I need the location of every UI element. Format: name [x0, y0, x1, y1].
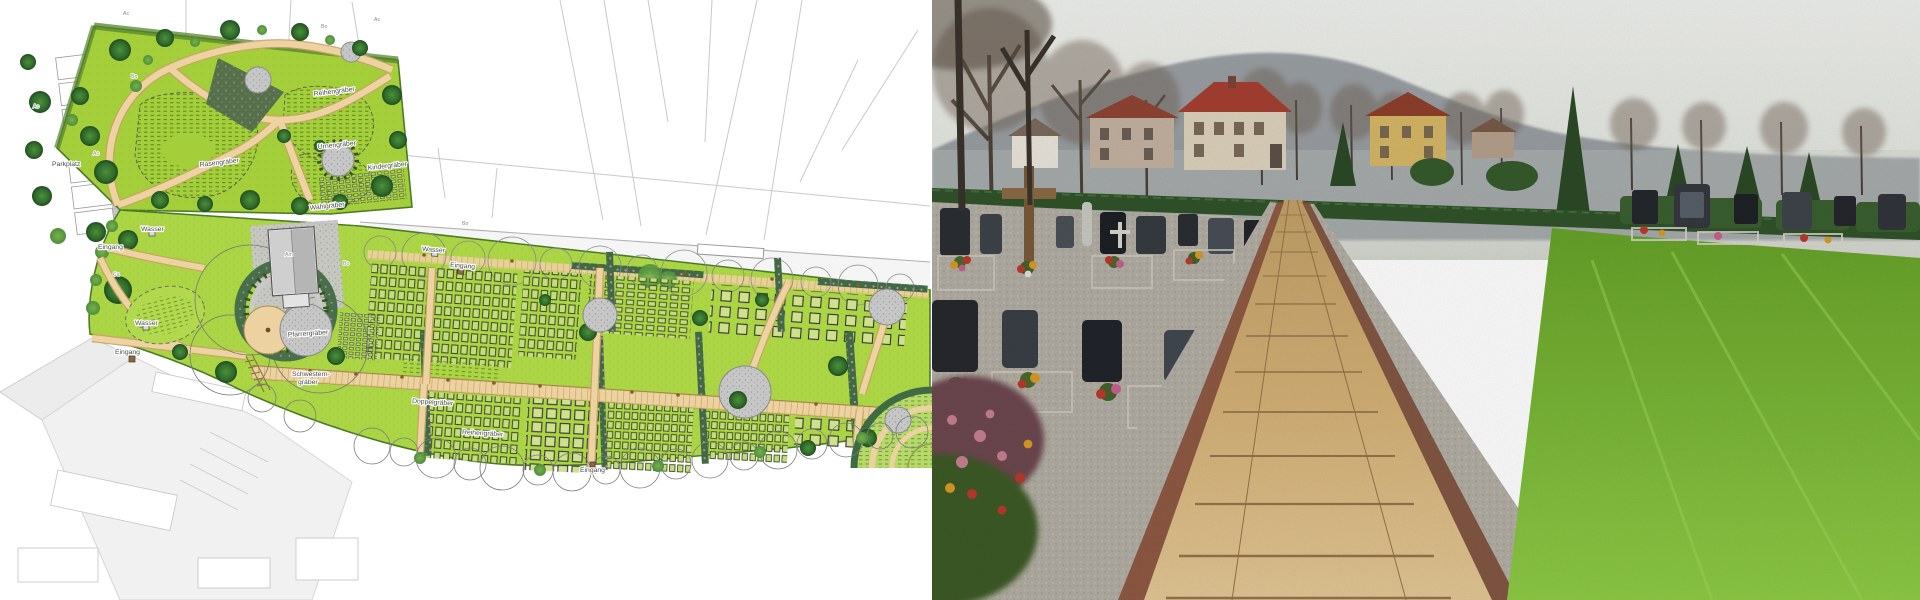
plan-label-schwestern: Schwestern- — [292, 371, 330, 378]
screenshot: Parkplatz Rasengräber Reihengräber Urnen… — [0, 0, 1920, 600]
wooded-grove — [57, 20, 412, 215]
site-plan-drawing: Parkplatz Rasengräber Reihengräber Urnen… — [0, 0, 932, 600]
tree-code: Ac — [374, 17, 380, 23]
plan-label-wasser-2: Wasser — [135, 320, 159, 327]
tree-code: Ca — [113, 272, 120, 278]
plan-label-eingang-4: Eingang — [580, 467, 605, 474]
plan-label-eingang-2: Eingang — [115, 349, 140, 356]
tree-code: Bo — [343, 261, 349, 267]
plan-label-schwestern-2: gräber — [298, 379, 318, 386]
tree-code: Ac — [123, 11, 129, 17]
tree-code: Ac — [93, 151, 99, 157]
tree-code: Bo — [462, 221, 468, 227]
cemetery-photo-panel — [932, 0, 1920, 600]
plan-label-wasser-1: Wasser — [141, 226, 165, 233]
plan-label-parkplatz: Parkplatz — [52, 161, 81, 168]
cemetery-photo — [932, 0, 1920, 600]
plan-label-eingang-1: Eingang — [98, 244, 123, 251]
tree-code: Bo — [321, 24, 327, 30]
photo-grain — [932, 0, 1920, 600]
tree-code: Bo — [131, 74, 137, 80]
tree-code: Am — [285, 252, 293, 258]
tree-code: Ac — [33, 104, 39, 110]
site-plan-panel: Parkplatz Rasengräber Reihengräber Urnen… — [0, 0, 932, 600]
